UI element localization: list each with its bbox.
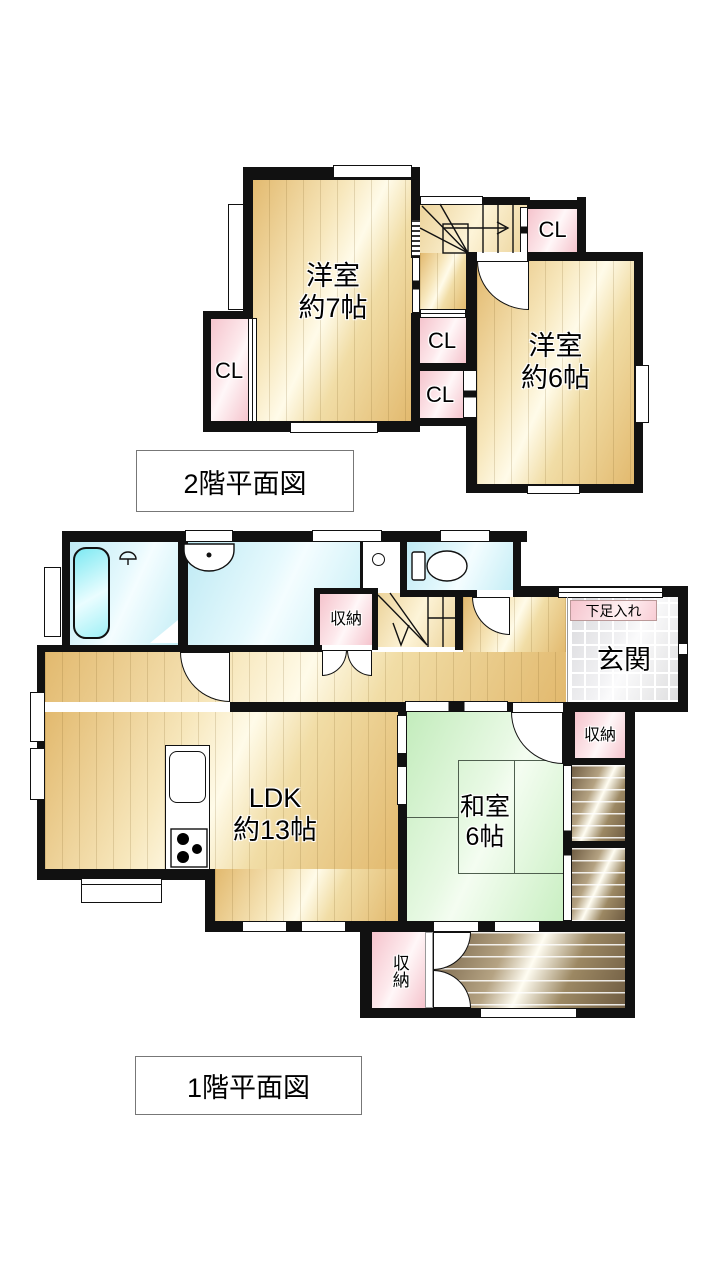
tatami-line — [458, 873, 563, 874]
window — [228, 204, 244, 310]
washitsu-label: 和室6帖 — [407, 792, 563, 852]
wall — [314, 588, 375, 594]
closet-topright-label: CL — [528, 217, 577, 243]
storage-east-label: 収納 — [572, 726, 628, 745]
second-floor-title: 2階平面図 — [183, 462, 306, 501]
entrance-door — [558, 587, 663, 598]
wall — [360, 925, 372, 1018]
bedroom-west-label: 洋室約7帖 — [253, 260, 413, 325]
veranda-east-floor — [572, 765, 625, 841]
folding-door-icon — [148, 616, 180, 645]
ldk-floor — [215, 869, 398, 921]
staircase-2f-icon — [420, 204, 527, 253]
bay-window — [81, 878, 162, 903]
door-opening — [513, 703, 563, 712]
wall — [62, 531, 70, 650]
hallway-floor — [45, 652, 566, 702]
first-floor-title-box: 1階平面図 — [135, 1056, 362, 1115]
window — [312, 530, 382, 542]
second-floor-title-box: 2階平面図 — [136, 450, 354, 512]
sliding-door — [563, 765, 572, 921]
closet-west-label: CL — [203, 358, 255, 384]
wall — [466, 252, 477, 370]
storage-hall-label: 収納 — [318, 610, 374, 629]
veranda-east-floor — [572, 848, 625, 921]
wall — [527, 200, 583, 209]
window-line — [82, 884, 161, 885]
door-opening — [477, 252, 527, 261]
toilet-icon — [410, 546, 470, 586]
sliding-door — [412, 257, 420, 313]
shoe-box: 下足入れ — [570, 600, 657, 621]
ldk-label: LDK約13帖 — [180, 782, 370, 847]
sliding-door — [463, 370, 477, 418]
window — [440, 530, 490, 542]
window — [433, 921, 540, 932]
window — [30, 692, 45, 742]
first-floor-title: 1階平面図 — [187, 1066, 310, 1105]
floor-plan-canvas: 洋室約7帖 洋室約6帖 CL CL CL CL 2階平面図 — [0, 0, 720, 1280]
wall — [400, 531, 407, 597]
wall — [466, 418, 477, 493]
sink-icon — [183, 543, 235, 575]
window — [527, 485, 580, 494]
utility-recess-floor — [363, 542, 400, 590]
sliding-door — [420, 309, 466, 318]
window — [242, 921, 346, 932]
window — [678, 643, 688, 655]
entrance-step-line — [567, 597, 568, 702]
door-panel — [425, 932, 433, 1008]
window — [333, 165, 412, 178]
bedroom-east-label: 洋室約6帖 — [477, 330, 634, 395]
stair-railing — [412, 220, 420, 256]
closet-mid-upper-label: CL — [418, 328, 466, 354]
shower-icon — [118, 550, 138, 568]
hall-2f-floor — [420, 253, 466, 311]
wall — [560, 702, 688, 712]
wall — [513, 531, 521, 597]
window — [185, 530, 233, 542]
wall — [243, 167, 253, 318]
window — [635, 365, 649, 423]
sliding-door — [405, 701, 508, 712]
window — [480, 1008, 577, 1018]
wall — [360, 542, 363, 590]
hand-basin-icon — [372, 553, 385, 566]
staircase-1f-icon — [378, 593, 455, 647]
wall — [455, 593, 463, 650]
window — [290, 422, 378, 433]
wall — [625, 702, 635, 1018]
shoe-box-label: 下足入れ — [586, 601, 642, 621]
storage-south-label: 収納 — [372, 938, 425, 1004]
door-opening — [477, 590, 513, 597]
bathtub-icon — [73, 547, 110, 639]
entrance-label: 玄関 — [570, 644, 678, 676]
wall — [37, 645, 322, 652]
closet-mid-lower-label: CL — [416, 382, 464, 408]
window — [44, 567, 61, 637]
sliding-door — [397, 715, 407, 805]
window — [30, 748, 45, 800]
